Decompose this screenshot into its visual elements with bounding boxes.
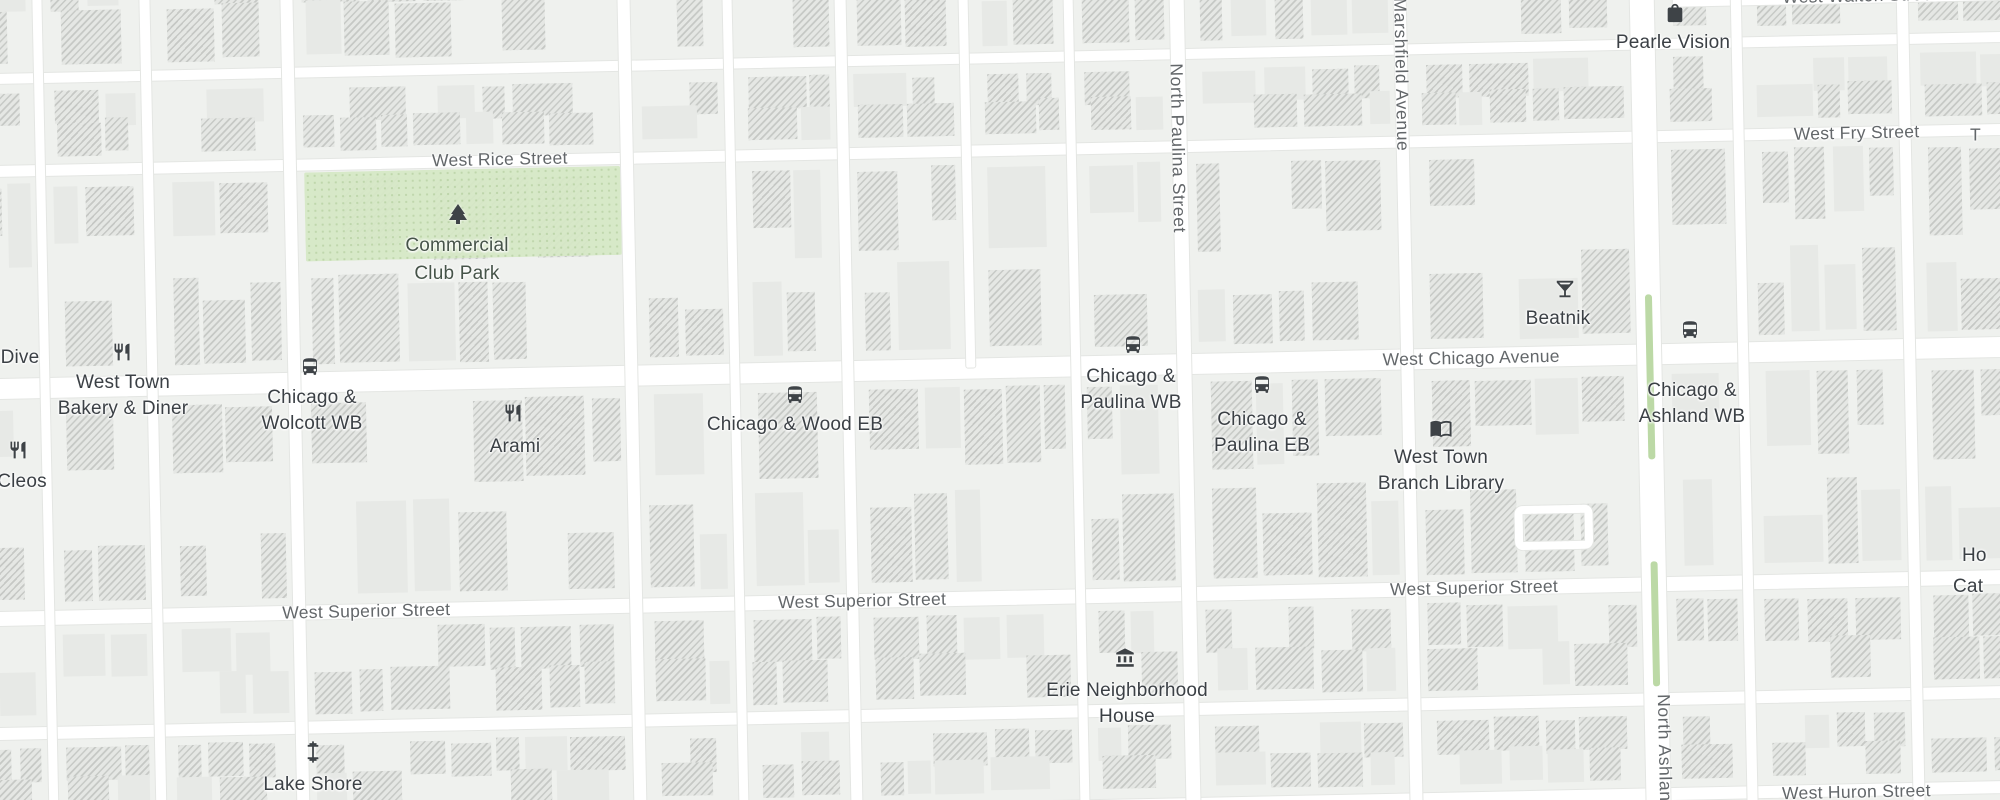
poi-edge-partial[interactable]: Ho Cat [1953,540,1987,602]
cocktail-icon[interactable] [1554,278,1576,300]
library-book-icon[interactable] [1430,417,1453,440]
poi-beatnik[interactable]: Beatnik [1526,306,1591,332]
restaurant-icon[interactable] [503,403,523,423]
museum-icon[interactable] [1115,648,1136,669]
bus-icon[interactable] [1123,335,1144,356]
poi-commercial-club-park[interactable]: Commercial Club Park [405,232,508,288]
restaurant-icon[interactable] [112,342,132,362]
bus-icon[interactable] [785,385,806,406]
transit-stop-wood-eb[interactable]: Chicago & Wood EB [707,412,883,438]
transit-stop-ashland-wb[interactable]: Chicago & Ashland WB [1639,378,1746,430]
transit-stop-paulina-wb[interactable]: Chicago & Paulina WB [1080,364,1181,416]
bus-icon[interactable] [1252,375,1273,396]
poi-lake-shore[interactable]: Lake Shore [263,772,362,798]
poi-label-layer: Pearle Vision Beatnik West Town Bakery &… [0,0,2000,800]
poi-west-town-library[interactable]: West Town Branch Library [1378,445,1504,497]
tree-icon[interactable] [446,202,470,226]
poi-erie-house[interactable]: Erie Neighborhood House [1046,678,1208,730]
shopping-bag-icon[interactable] [1664,2,1686,24]
poi-cleos[interactable]: Cleos [0,469,47,495]
map-canvas[interactable]: West Rice Street West Fry Street West Wa… [0,0,2000,800]
poi-dive[interactable]: Dive [1,345,40,371]
transit-stop-paulina-eb[interactable]: Chicago & Paulina EB [1214,407,1310,459]
restaurant-icon[interactable] [8,440,28,460]
bus-icon[interactable] [300,357,321,378]
poi-arami[interactable]: Arami [490,434,541,460]
street-label-t-partial: T [1970,125,1981,146]
bus-icon[interactable] [1680,320,1701,341]
poi-pearle-vision[interactable]: Pearle Vision [1616,30,1730,56]
fitness-icon[interactable] [303,742,324,763]
poi-west-town-bakery[interactable]: West Town Bakery & Diner [58,370,189,422]
transit-stop-wolcott-wb[interactable]: Chicago & Wolcott WB [262,385,363,437]
